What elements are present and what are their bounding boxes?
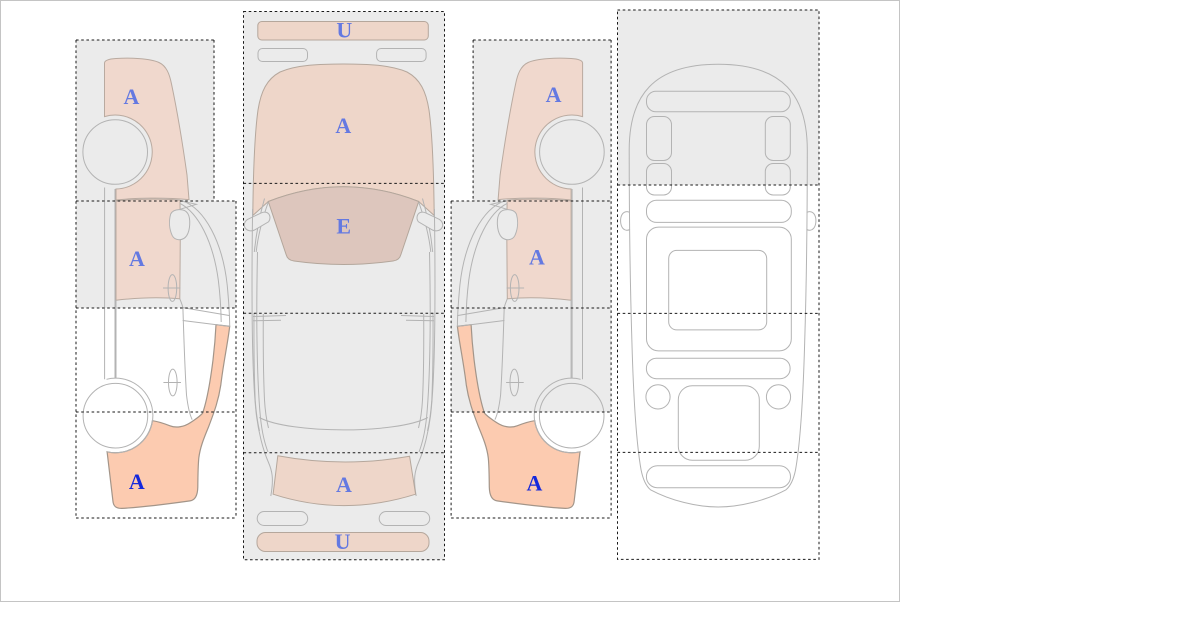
svg-text:A: A (129, 246, 145, 271)
svg-text:A: A (335, 113, 351, 138)
svg-text:A: A (546, 82, 562, 107)
svg-text:A: A (529, 244, 545, 269)
svg-text:U: U (335, 529, 351, 554)
svg-text:E: E (336, 213, 351, 238)
svg-text:A: A (124, 84, 140, 109)
svg-text:A: A (129, 469, 145, 494)
svg-text:A: A (336, 472, 352, 497)
svg-text:A: A (526, 470, 542, 495)
svg-text:U: U (336, 17, 352, 42)
